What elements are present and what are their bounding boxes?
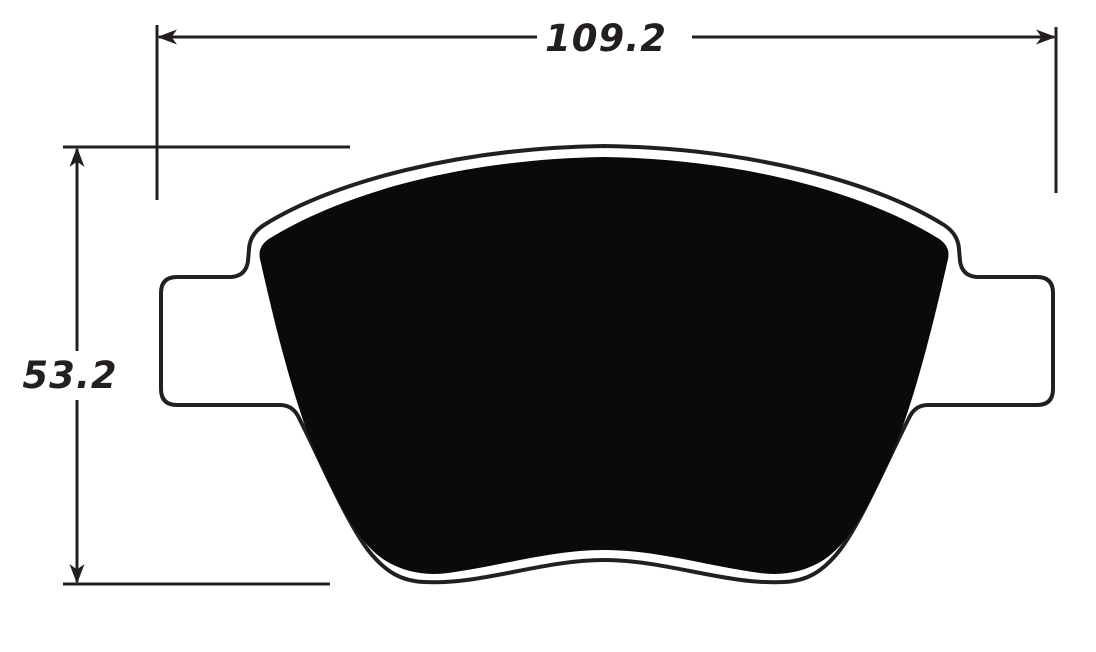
brake-pad-friction-material bbox=[260, 157, 949, 574]
width-dimension-label: 109.2 bbox=[545, 17, 667, 60]
brake-pad-technical-drawing: 109.2 53.2 bbox=[0, 0, 1096, 652]
height-dimension-label: 53.2 bbox=[22, 354, 117, 397]
drawing-canvas: 109.2 53.2 bbox=[0, 0, 1096, 652]
